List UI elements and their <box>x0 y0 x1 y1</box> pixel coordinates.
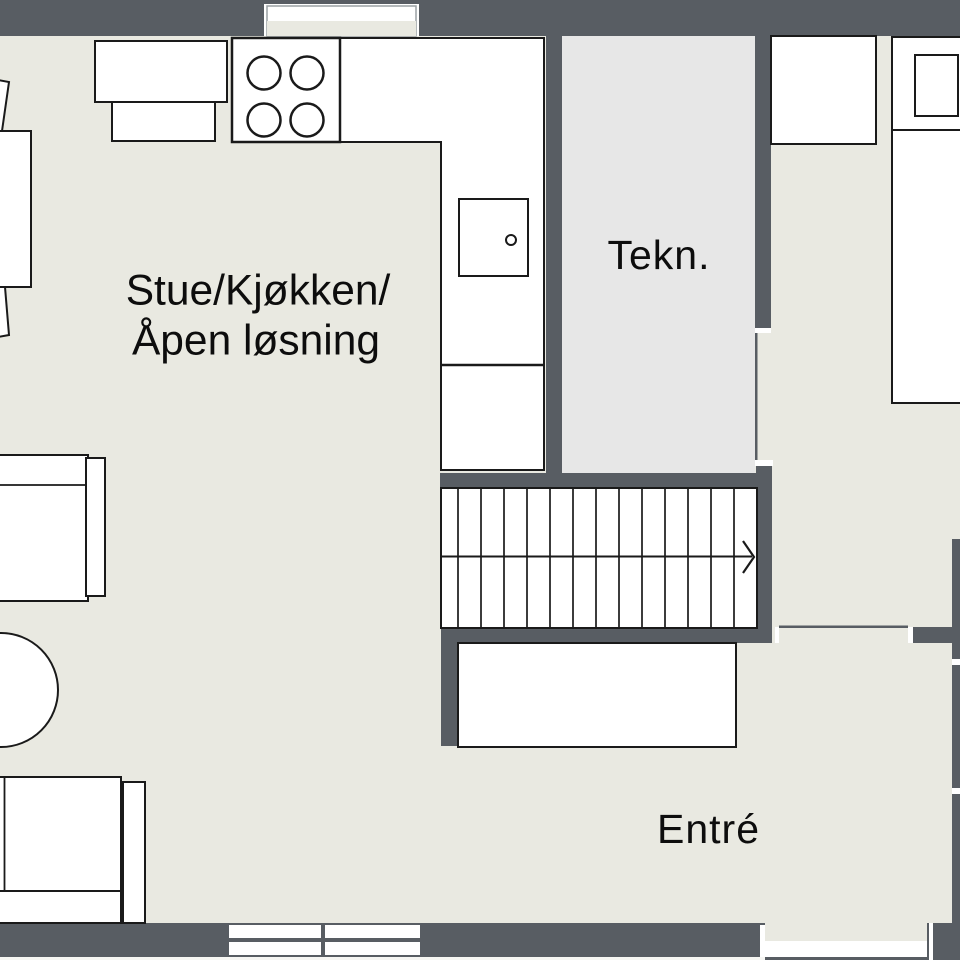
svg-text:Åpen løsning: Åpen løsning <box>132 317 380 365</box>
svg-text:Tekn.: Tekn. <box>608 232 711 278</box>
svg-text:Entré: Entré <box>657 806 760 852</box>
svg-text:Stue/Kjøkken/: Stue/Kjøkken/ <box>126 268 391 315</box>
